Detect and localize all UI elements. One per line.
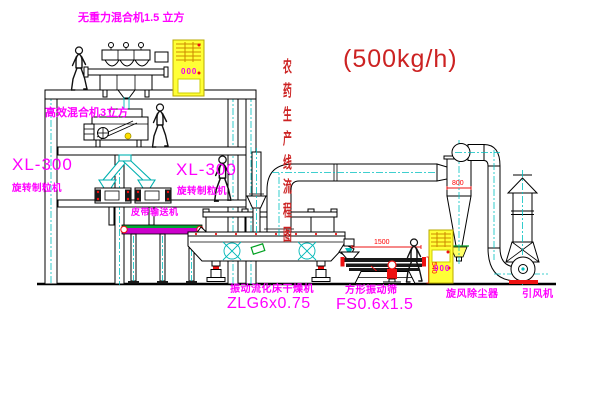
label-granulator-right-name: 旋转制粒机 <box>177 187 227 197</box>
label-sieve-name: 方形振动筛 <box>345 286 398 296</box>
label-granulator-left-model: XL-300 <box>12 156 73 173</box>
label-gravity-free-mixer: 无重力混合机1.5 立方 <box>78 13 184 24</box>
dim-cyclone-dia: 800 <box>452 180 464 187</box>
process-diagram-canvas <box>0 0 600 403</box>
worker-second-floor <box>153 104 169 147</box>
label-fan: 引风机 <box>522 290 554 300</box>
label-high-eff-mixer: 高效混合机3立方 <box>45 108 128 119</box>
control-cabinet-cyclone <box>429 230 453 283</box>
label-cyclone: 旋风除尘器 <box>446 290 499 300</box>
label-sieve-model: FS0.6x1.5 <box>336 297 413 313</box>
label-dryer-model: ZLG6x0.75 <box>227 296 311 312</box>
flow-diagram: 农药生产线流程图 (500kg/h) 无重力混合机1.5 立方 高效混合机3立方… <box>0 0 600 403</box>
label-granulator-right-model: XL-300 <box>176 161 237 178</box>
cabinet2-display: 000 <box>434 265 450 273</box>
y-chute <box>99 155 155 188</box>
title-chinese: 农药生产线流程图 <box>283 53 292 245</box>
cabinet1-display: 000 <box>181 68 197 76</box>
label-belt-conveyor: 皮带输送机 <box>131 208 179 217</box>
label-dryer-name: 振动流化床干燥机 <box>230 285 314 295</box>
label-granulator-left-name: 旋转制粒机 <box>12 184 62 194</box>
dim-sieve-length: 1500 <box>374 239 390 246</box>
title-capacity: (500kg/h) <box>343 45 458 74</box>
